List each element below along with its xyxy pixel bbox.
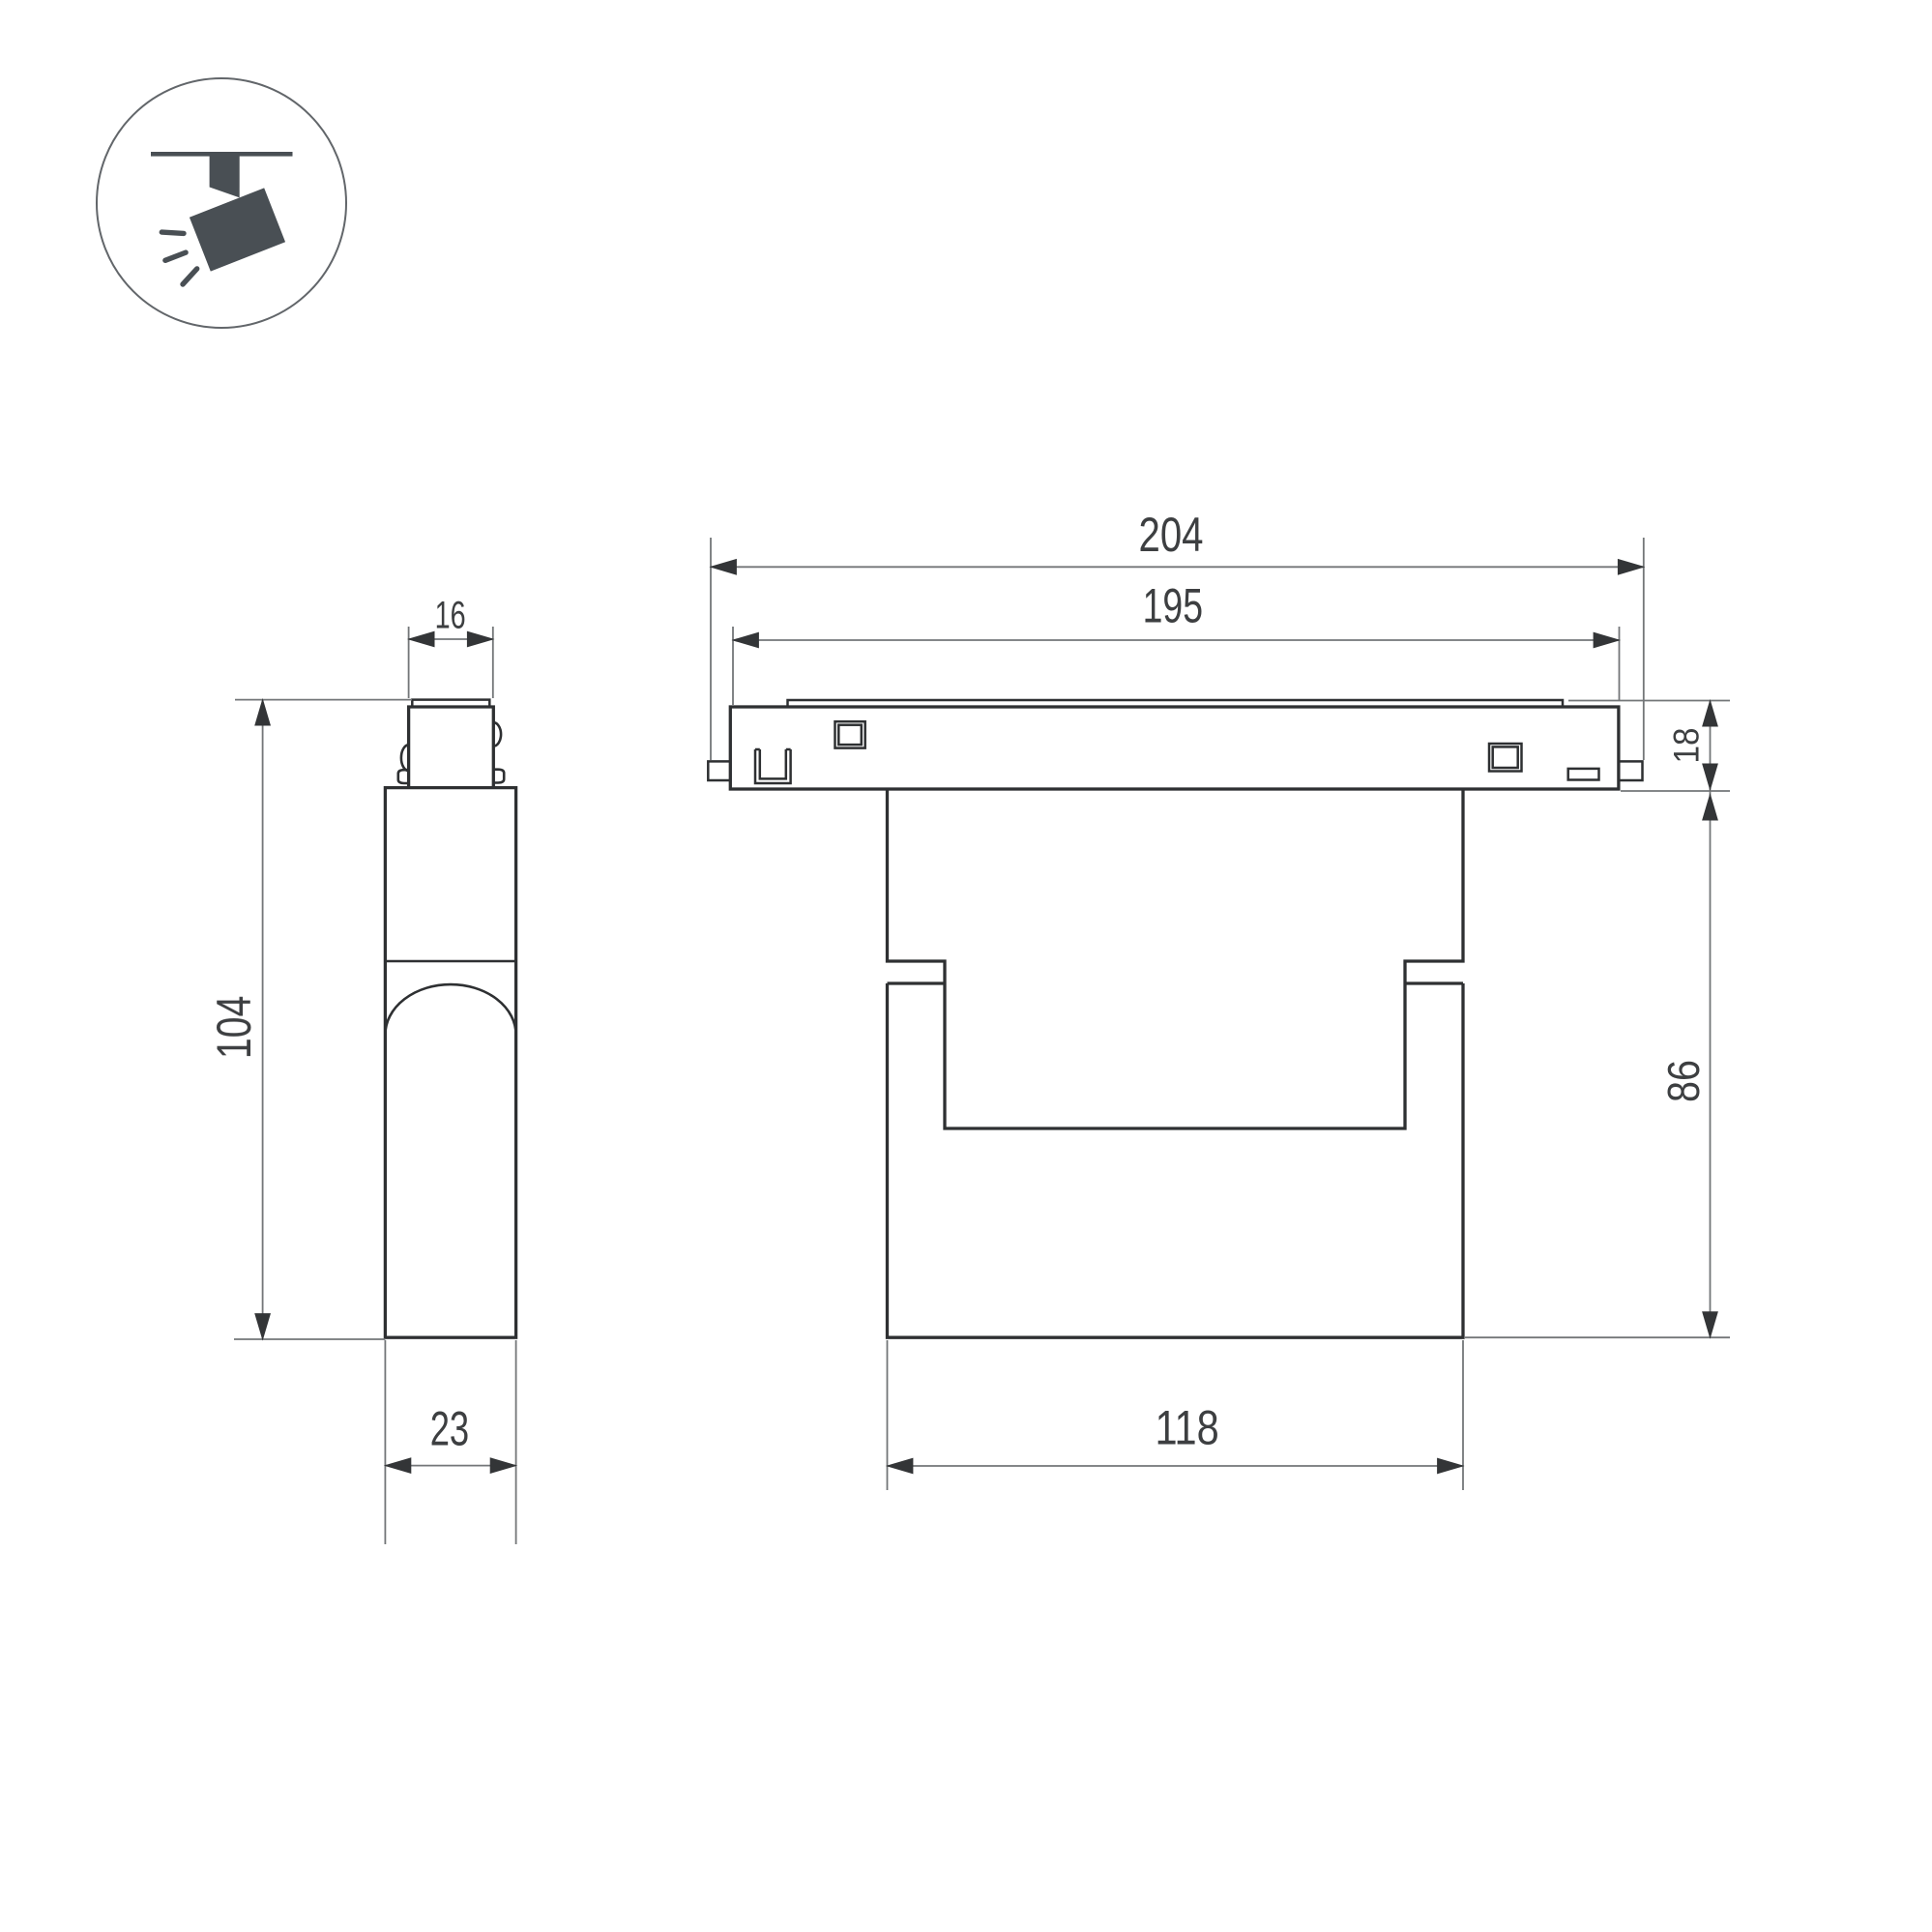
svg-text:195: 195	[1143, 579, 1203, 633]
svg-text:23: 23	[430, 1402, 470, 1456]
svg-text:118: 118	[1156, 1400, 1219, 1454]
svg-text:86: 86	[1658, 1060, 1709, 1102]
svg-text:18: 18	[1666, 728, 1707, 764]
svg-text:204: 204	[1139, 508, 1204, 562]
svg-text:104: 104	[207, 996, 261, 1059]
svg-text:16: 16	[435, 594, 466, 636]
